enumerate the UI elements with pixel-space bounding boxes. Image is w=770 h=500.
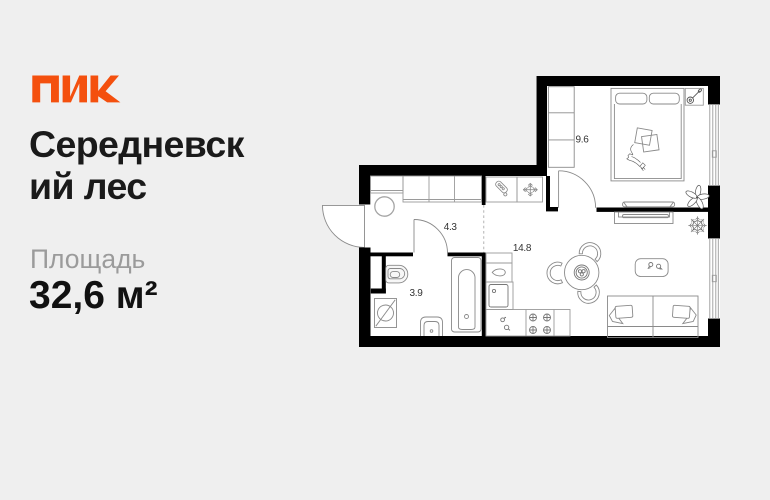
svg-text:14.8: 14.8 xyxy=(513,243,532,254)
svg-text:9.6: 9.6 xyxy=(576,135,590,146)
svg-text:4.3: 4.3 xyxy=(444,222,458,233)
svg-text:3.9: 3.9 xyxy=(410,288,424,299)
